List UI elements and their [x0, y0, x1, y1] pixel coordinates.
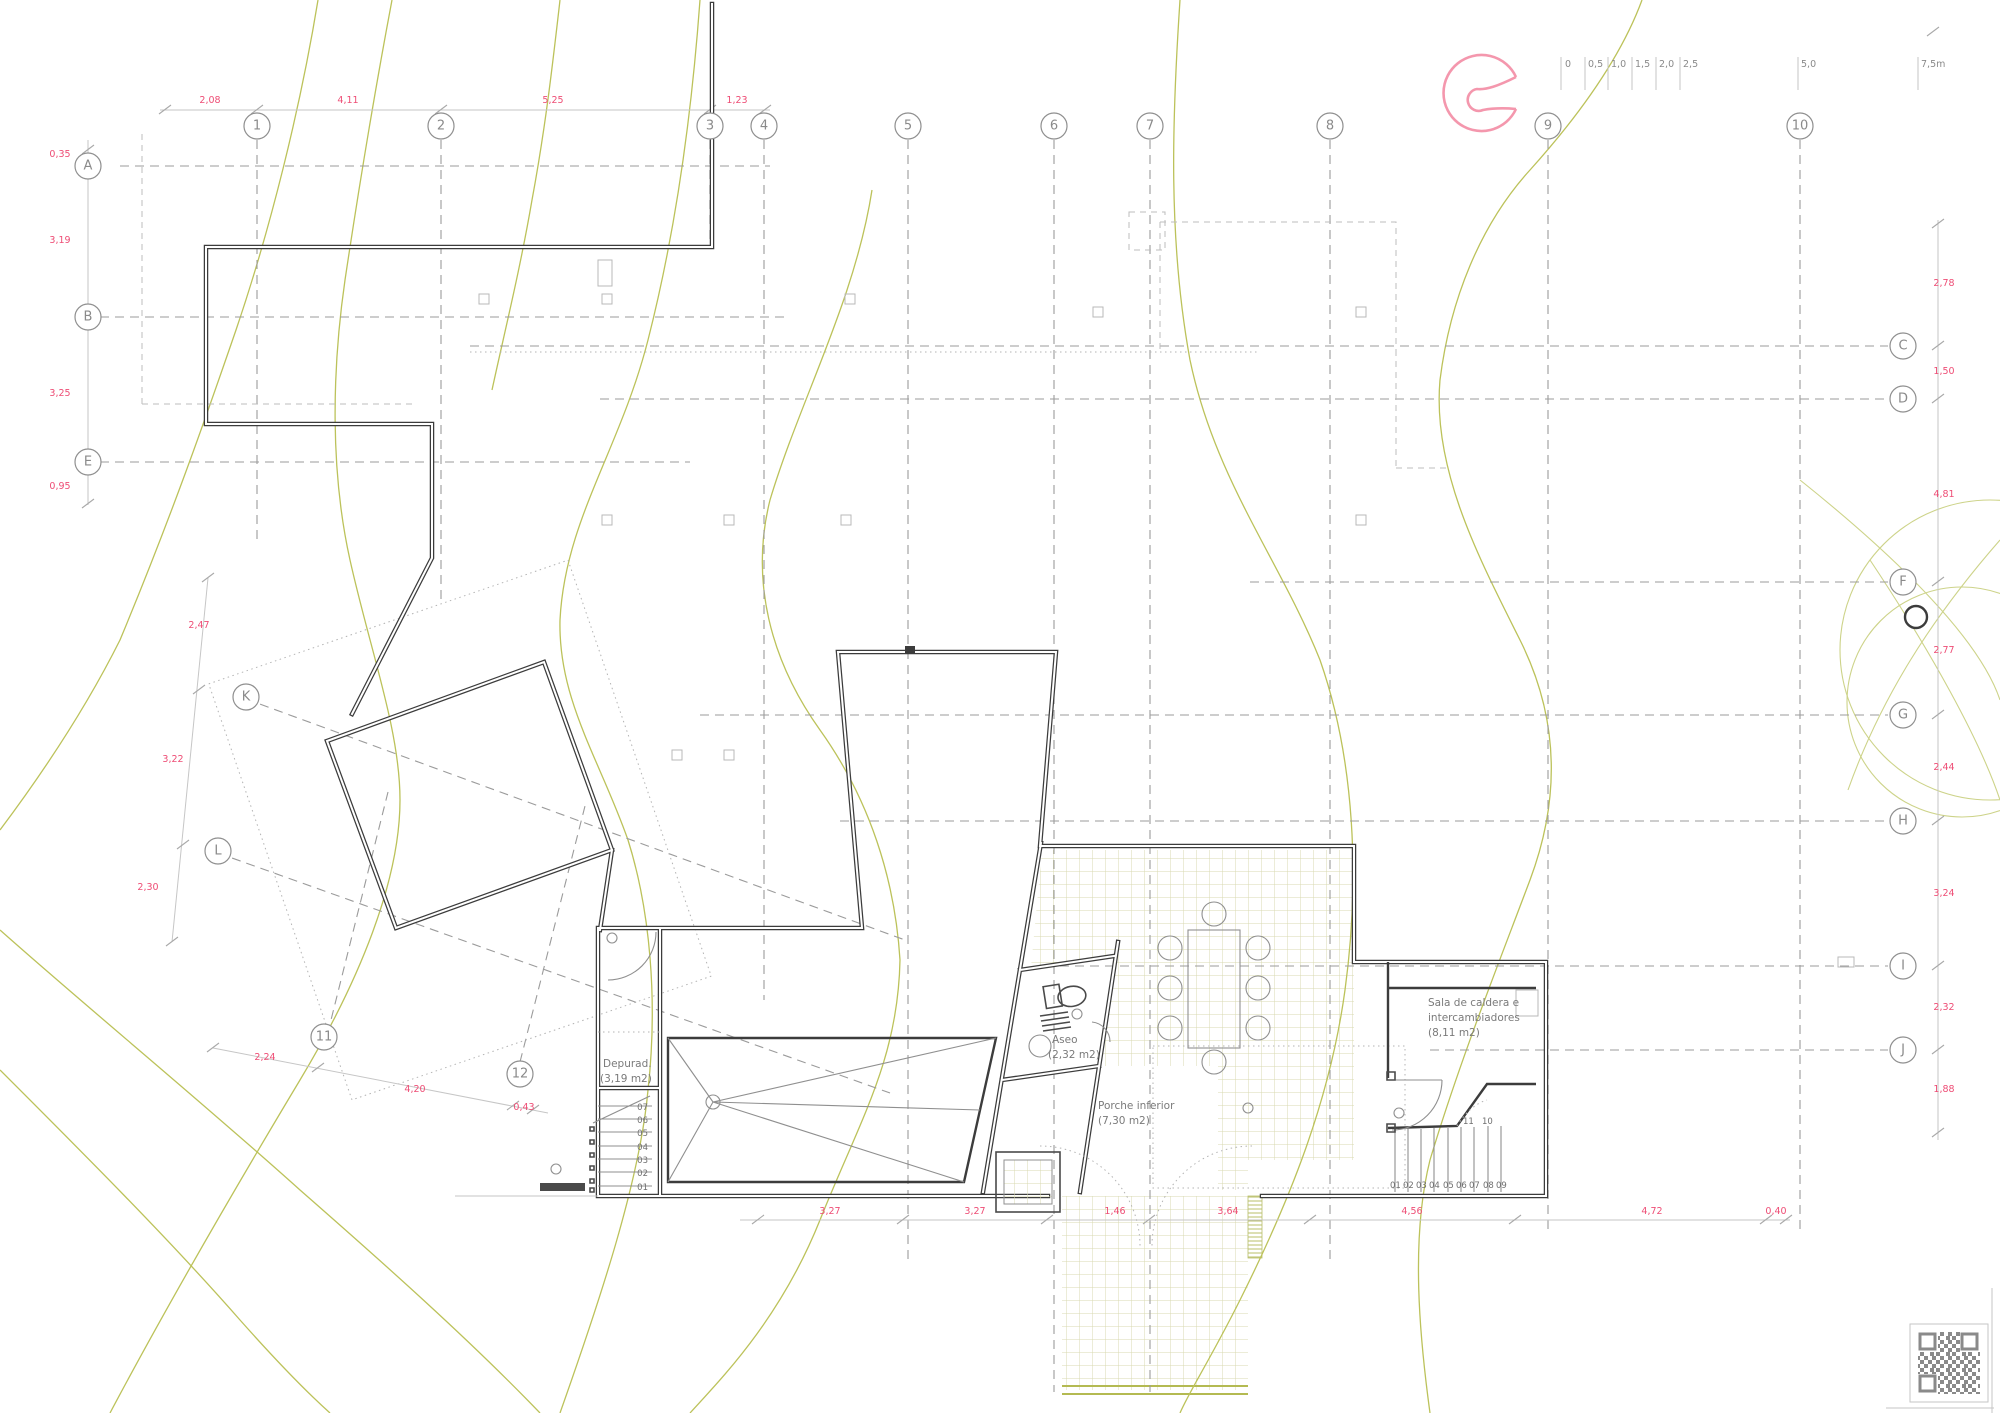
scalebar-label-5,0: 5,0	[1801, 59, 1816, 70]
dim-bottom-4,56: 4,56	[1401, 1206, 1422, 1217]
stair-sala-03: 03	[1416, 1181, 1427, 1191]
grid-row-I: I	[1901, 959, 1905, 974]
scalebar-label-1,0: 1,0	[1611, 59, 1626, 70]
stair-sala-01: 01	[1390, 1181, 1401, 1191]
stairs-left-numbers: 07060504030201	[637, 1103, 648, 1193]
scalebar-label-0: 0	[1565, 59, 1571, 70]
dim-left-3,19: 3,19	[49, 235, 70, 246]
stair-sala-06: 06	[1456, 1181, 1467, 1191]
dim-top-2,08: 2,08	[199, 95, 220, 106]
grid-lines	[100, 134, 1888, 1392]
grid-row-L: L	[214, 844, 222, 859]
stair-sala-04: 04	[1429, 1181, 1440, 1191]
scalebar-label-7,5m: 7,5m	[1921, 59, 1945, 70]
dim-top-5,25: 5,25	[542, 95, 563, 106]
room-area-porche: (7,30 m2)	[1098, 1115, 1150, 1127]
room-area-depurad: (3,19 m2)	[600, 1073, 652, 1085]
stair-left-02: 02	[637, 1169, 648, 1179]
stair-sala-08: 08	[1483, 1181, 1494, 1191]
grid-col-bubbles-diag: 1112	[311, 1024, 533, 1087]
dim-bottom-left-4,20: 4,20	[404, 1084, 425, 1095]
wall-notch	[905, 646, 915, 654]
dim-right-2,32: 2,32	[1933, 1002, 1954, 1013]
grid-row-H: H	[1898, 814, 1908, 829]
stair-sala-upper-11: 11	[1463, 1117, 1474, 1127]
grid-col-bubbles: 12345678910	[244, 113, 1813, 139]
dim-left-lower-2,30: 2,30	[137, 882, 158, 893]
dim-left-0,95: 0,95	[49, 481, 70, 492]
dims-bottom-left: 2,244,200,43	[254, 1052, 534, 1113]
dim-bottom-0,40: 0,40	[1765, 1206, 1786, 1217]
dim-top-1,23: 1,23	[726, 95, 747, 106]
grid-row-C: C	[1898, 339, 1907, 354]
grid-col-1: 1	[253, 119, 261, 134]
grid-row-G: G	[1898, 708, 1908, 723]
grid-row-F: F	[1899, 575, 1906, 590]
stair-sala-upper-10: 10	[1482, 1117, 1493, 1127]
utility-bar	[540, 1183, 585, 1191]
dim-bottom-4,72: 4,72	[1641, 1206, 1662, 1217]
stairs-sala-numbers: 010203040506070809	[1390, 1181, 1507, 1191]
room-label-porche: Porche inferior	[1098, 1100, 1175, 1112]
stair-left-04: 04	[637, 1143, 648, 1153]
grid-row-B: B	[84, 310, 93, 325]
dims-left: 0,353,193,250,95	[49, 149, 70, 492]
grid-col-10: 10	[1792, 119, 1809, 134]
dim-bottom-1,46: 1,46	[1104, 1206, 1125, 1217]
tree-canopy-outline	[1840, 500, 2000, 800]
grid-row-J: J	[1900, 1043, 1905, 1058]
grid-col-7: 7	[1146, 119, 1154, 134]
stair-left-01: 01	[637, 1183, 648, 1193]
grid-col-8: 8	[1326, 119, 1334, 134]
dim-left-3,25: 3,25	[49, 388, 70, 399]
tree-trunk	[1905, 606, 1927, 628]
grid-col-9: 9	[1544, 119, 1552, 134]
grid-col-5: 5	[904, 119, 912, 134]
dim-right-3,24: 3,24	[1933, 888, 1954, 899]
grid-col-6: 6	[1050, 119, 1058, 134]
dim-left-0,35: 0,35	[49, 149, 70, 160]
room-label-sala-2: intercambiadores	[1428, 1012, 1520, 1024]
stair-sala-05: 05	[1443, 1181, 1454, 1191]
dim-bottom-3,27: 3,27	[964, 1206, 985, 1217]
grid-row-D: D	[1898, 392, 1908, 407]
dim-left-lower-3,22: 3,22	[162, 754, 183, 765]
dim-right-1,50: 1,50	[1933, 366, 1954, 377]
grid-row-bubbles-right: CDFGHIJ	[1890, 333, 1916, 1063]
stair-left-06: 06	[637, 1116, 648, 1126]
room-label-depurad: Depurad.	[603, 1058, 652, 1070]
stair-sala-02: 02	[1403, 1181, 1414, 1191]
dim-bottom-left-0,43: 0,43	[513, 1102, 534, 1113]
grid-row-E: E	[84, 455, 92, 470]
qr-code	[1910, 1324, 1988, 1402]
dim-bottom-left-2,24: 2,24	[254, 1052, 275, 1063]
grid-row-bubbles-diag: KL	[205, 684, 259, 864]
dim-top-4,11: 4,11	[337, 95, 358, 106]
terrain-contours	[0, 0, 2000, 1413]
dim-bottom-3,64: 3,64	[1217, 1206, 1238, 1217]
dim-left-lower-2,47: 2,47	[188, 620, 209, 631]
stair-left-05: 05	[637, 1129, 648, 1139]
dim-right-2,77: 2,77	[1933, 645, 1954, 656]
dims-right: 2,781,504,812,772,443,242,321,88	[1933, 278, 1954, 1095]
stair-left-07: 07	[637, 1103, 648, 1113]
stair-sala-07: 07	[1469, 1181, 1480, 1191]
room-area-sala: (8,11 m2)	[1428, 1027, 1480, 1039]
scalebar-label-2,5: 2,5	[1683, 59, 1698, 70]
floor-plan-sheet: 12345678910 ABE CDFGHIJ KL 1112 2,084,11…	[0, 0, 2000, 1413]
dims-top: 2,084,115,251,23	[199, 95, 747, 106]
dims-bottom: 3,273,271,463,644,564,720,40	[819, 1206, 1786, 1217]
scale-bar: 00,51,01,52,02,55,07,5m	[1565, 59, 1945, 70]
dims-left-lower: 2,473,222,30	[137, 620, 209, 893]
dim-right-1,88: 1,88	[1933, 1084, 1954, 1095]
grid-col-3: 3	[706, 119, 714, 134]
grid-col-12: 12	[512, 1067, 529, 1082]
grid-col-4: 4	[760, 119, 768, 134]
dim-bottom-3,27: 3,27	[819, 1206, 840, 1217]
plan-drawing: 12345678910 ABE CDFGHIJ KL 1112 2,084,11…	[0, 0, 2000, 1413]
room-area-aseo: (2,32 m2)	[1048, 1049, 1100, 1061]
stair-sala-09: 09	[1496, 1181, 1507, 1191]
dim-right-2,78: 2,78	[1933, 278, 1954, 289]
grid-col-2: 2	[437, 119, 445, 134]
scalebar-label-2,0: 2,0	[1659, 59, 1674, 70]
grid-row-A: A	[84, 159, 93, 174]
room-label-sala-1: Sala de caldera e	[1428, 997, 1519, 1009]
stair-left-03: 03	[637, 1156, 648, 1166]
scalebar-label-1,5: 1,5	[1635, 59, 1650, 70]
room-label-aseo: Aseo	[1052, 1034, 1078, 1046]
grid-col-11: 11	[316, 1030, 333, 1045]
scalebar-label-0,5: 0,5	[1588, 59, 1603, 70]
porch-wall-hatch	[1248, 1196, 1262, 1258]
grid-row-K: K	[242, 690, 251, 705]
dim-right-4,81: 4,81	[1933, 489, 1954, 500]
logo-e	[1444, 55, 1516, 131]
dim-right-2,44: 2,44	[1933, 762, 1954, 773]
